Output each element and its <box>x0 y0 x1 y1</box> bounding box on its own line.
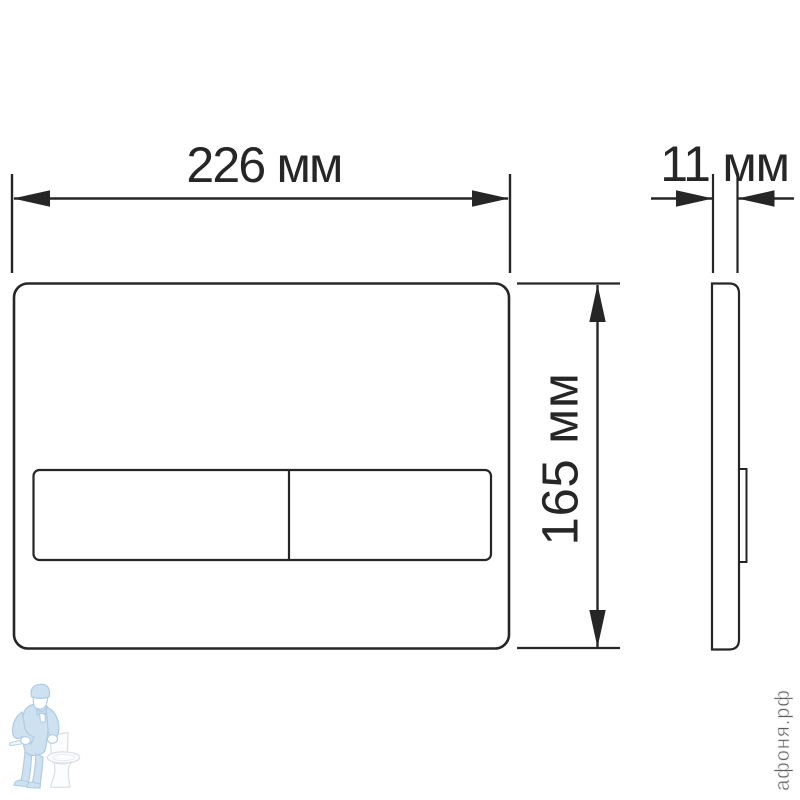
svg-text:афоня.рф: афоня.рф <box>772 689 794 791</box>
svg-text:226 мм: 226 мм <box>186 137 341 193</box>
svg-text:165 мм: 165 мм <box>532 373 589 546</box>
svg-text:11 мм: 11 мм <box>660 136 789 192</box>
